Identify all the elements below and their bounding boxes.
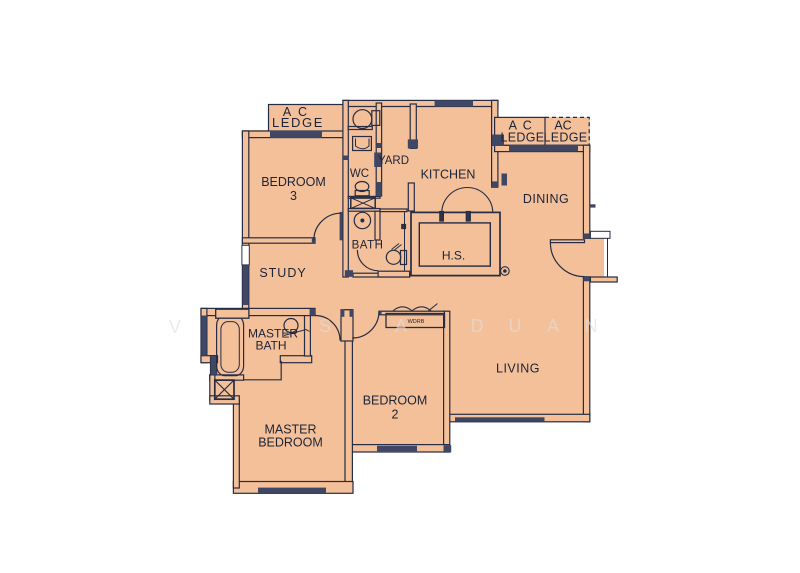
svg-text:MASTER: MASTER bbox=[264, 423, 316, 437]
svg-text:A: A bbox=[547, 316, 559, 336]
svg-text:D: D bbox=[471, 316, 484, 336]
svg-text:LEDGE: LEDGE bbox=[544, 131, 588, 145]
svg-text:N: N bbox=[585, 316, 598, 336]
svg-text:STUDY: STUDY bbox=[259, 266, 306, 280]
svg-text:BEDROOM: BEDROOM bbox=[363, 394, 428, 408]
svg-text:BATH: BATH bbox=[255, 339, 286, 353]
svg-text:H.S.: H.S. bbox=[442, 249, 465, 263]
svg-text:BATH: BATH bbox=[352, 240, 384, 252]
svg-text:3: 3 bbox=[290, 189, 297, 203]
svg-text:2: 2 bbox=[392, 408, 399, 422]
svg-text:BEDROOM: BEDROOM bbox=[258, 436, 323, 450]
svg-text:LEDGE: LEDGE bbox=[272, 115, 324, 130]
svg-text:YARD: YARD bbox=[378, 155, 409, 167]
svg-text:WC: WC bbox=[350, 168, 369, 180]
svg-text:KITCHEN: KITCHEN bbox=[421, 168, 476, 182]
svg-text:LIVING: LIVING bbox=[496, 362, 540, 376]
svg-text:WDRB: WDRB bbox=[408, 319, 425, 325]
svg-text:LEDGE: LEDGE bbox=[501, 131, 545, 145]
svg-text:V: V bbox=[169, 317, 181, 337]
svg-text:S: S bbox=[319, 316, 331, 336]
svg-text:BEDROOM: BEDROOM bbox=[261, 175, 326, 189]
svg-text:A: A bbox=[395, 316, 407, 336]
svg-text:DINING: DINING bbox=[523, 192, 569, 206]
svg-text:U: U bbox=[509, 316, 522, 336]
